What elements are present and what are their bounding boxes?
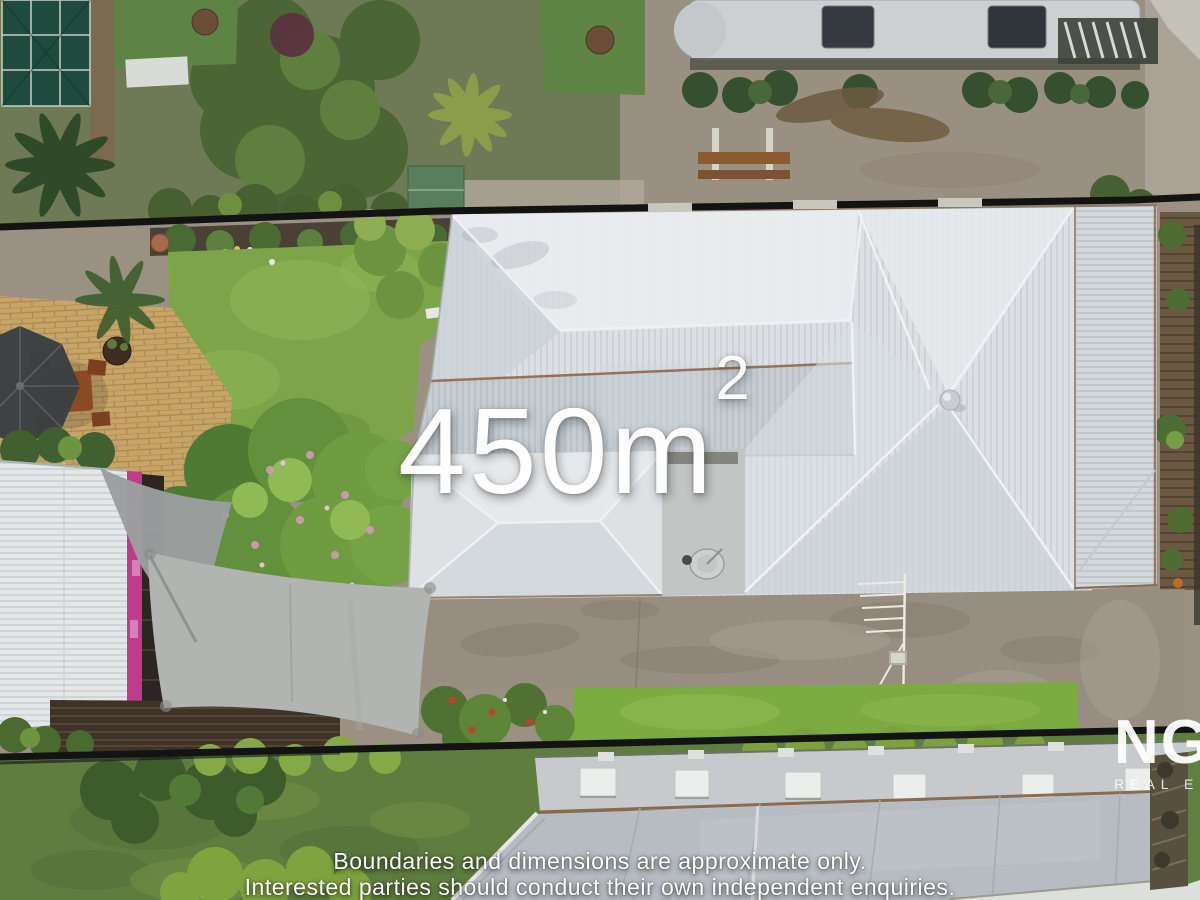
side-timber-fence <box>1154 212 1200 625</box>
agency-watermark-logo: NG REAL ES <box>1114 712 1200 792</box>
orange-pot <box>1173 578 1183 588</box>
left-neighbor-roof <box>0 460 128 730</box>
disclaimer-text: Boundaries and dimensions are approximat… <box>0 848 1200 900</box>
garden-shed <box>408 166 464 214</box>
area-superscript: 2 <box>715 344 749 413</box>
plant-pot <box>586 26 614 54</box>
garden-table <box>125 56 188 87</box>
aerial-property-photo: 450m2 NG REAL ES Boundaries and dimensio… <box>0 0 1200 900</box>
watermark-subtitle: REAL ES <box>1114 776 1200 792</box>
disclaimer-line-2: Interested parties should conduct their … <box>0 874 1200 900</box>
watermark-brand: NG <box>1114 712 1200 774</box>
caravan-hatch <box>988 6 1046 48</box>
terracotta-pot <box>151 234 169 252</box>
disclaimer-line-1: Boundaries and dimensions are approximat… <box>0 848 1200 874</box>
greenhouse <box>2 0 90 106</box>
caravan-hatch <box>822 6 874 48</box>
metal-rack <box>1058 18 1158 64</box>
roof-right-extension <box>1075 206 1157 590</box>
land-area-overlay: 450m2 <box>398 390 750 512</box>
area-value: 450m <box>398 383 715 519</box>
plant-pot <box>192 9 218 35</box>
red-plant <box>270 13 314 57</box>
